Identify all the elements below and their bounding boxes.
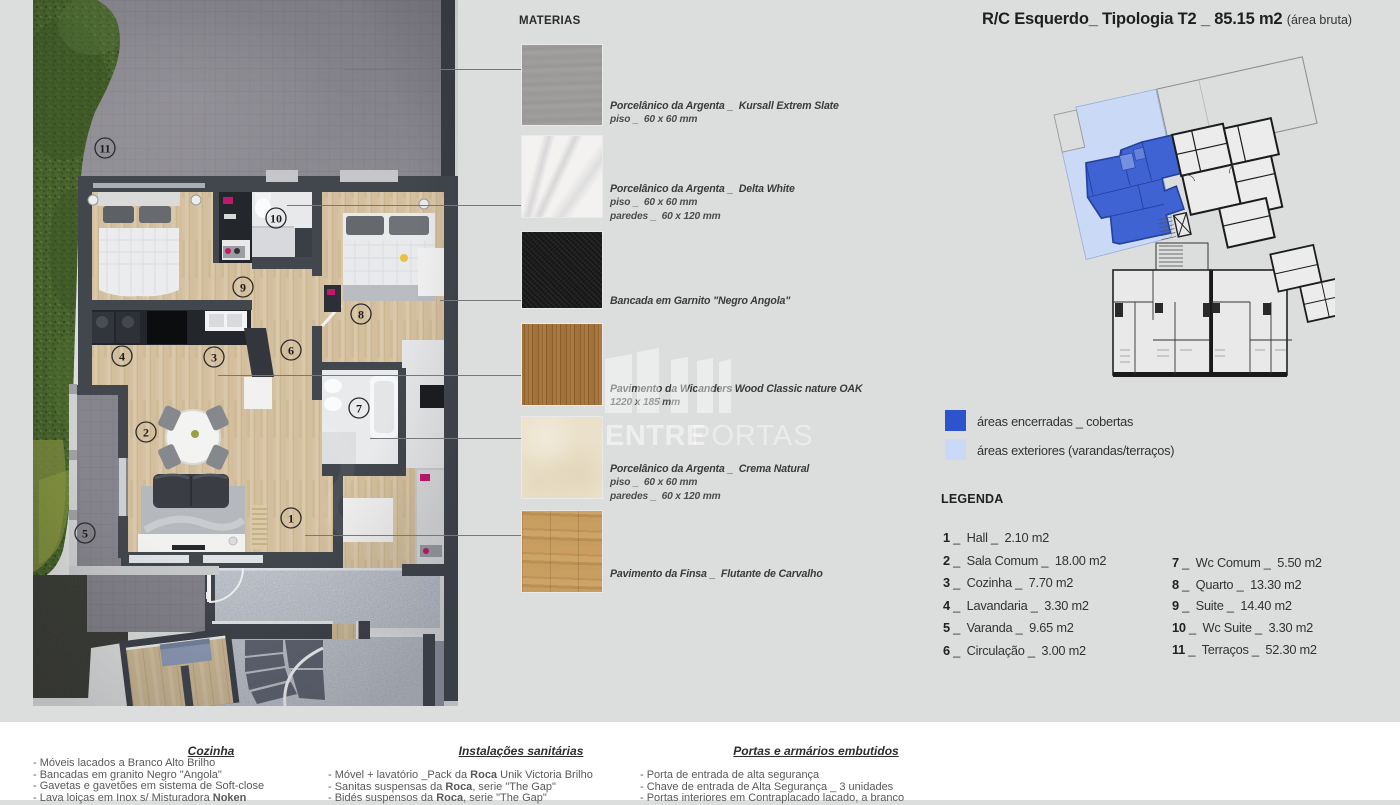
svg-text:9: 9 [240, 281, 246, 295]
svg-text:8: 8 [358, 308, 364, 322]
svg-text:1: 1 [288, 512, 294, 526]
svg-text:4: 4 [119, 350, 125, 364]
svg-text:10: 10 [270, 212, 282, 226]
svg-text:3: 3 [211, 351, 217, 365]
svg-text:11: 11 [99, 142, 110, 156]
svg-text:6: 6 [288, 344, 294, 358]
svg-text:PORTAS: PORTAS [691, 420, 814, 452]
svg-text:2: 2 [143, 426, 149, 440]
svg-text:7: 7 [356, 402, 362, 416]
svg-text:5: 5 [82, 527, 88, 541]
